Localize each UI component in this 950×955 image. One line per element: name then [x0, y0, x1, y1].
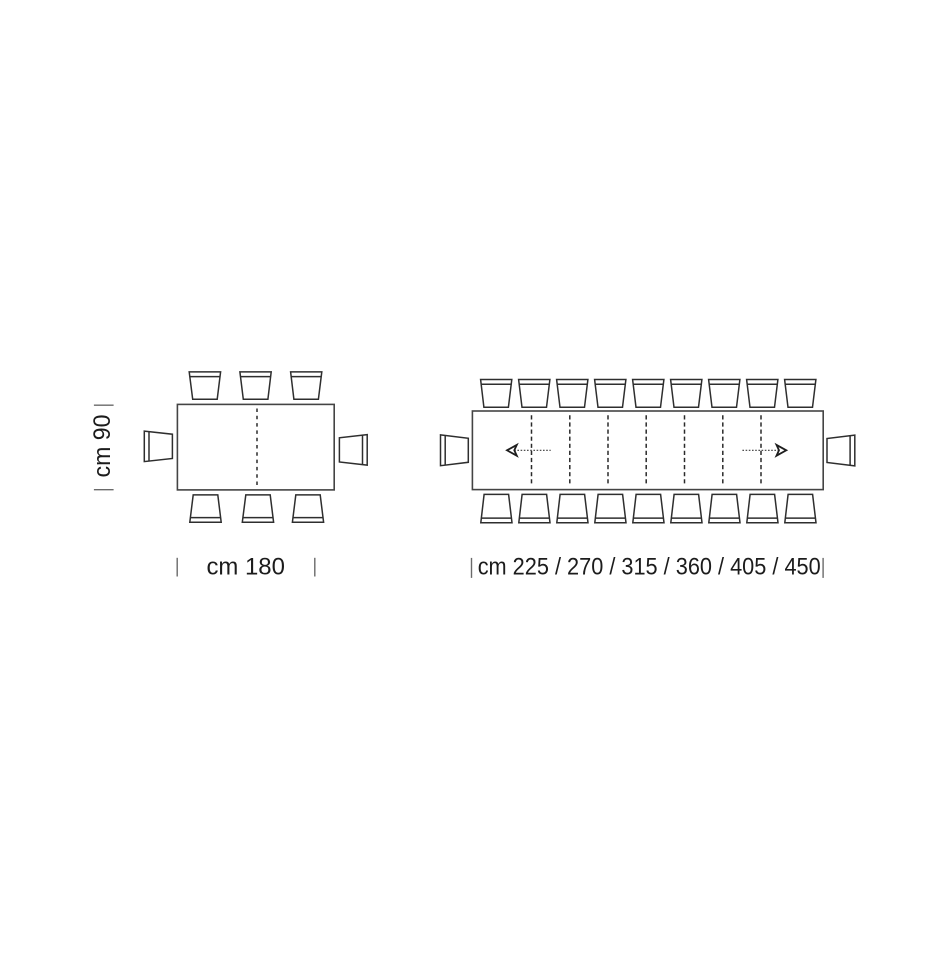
- svg-text:cm 90: cm 90: [89, 415, 116, 478]
- svg-text:cm 225 / 270 / 315 / 360 / 405: cm 225 / 270 / 315 / 360 / 405 / 450: [478, 554, 821, 581]
- svg-text:cm 180: cm 180: [206, 554, 285, 581]
